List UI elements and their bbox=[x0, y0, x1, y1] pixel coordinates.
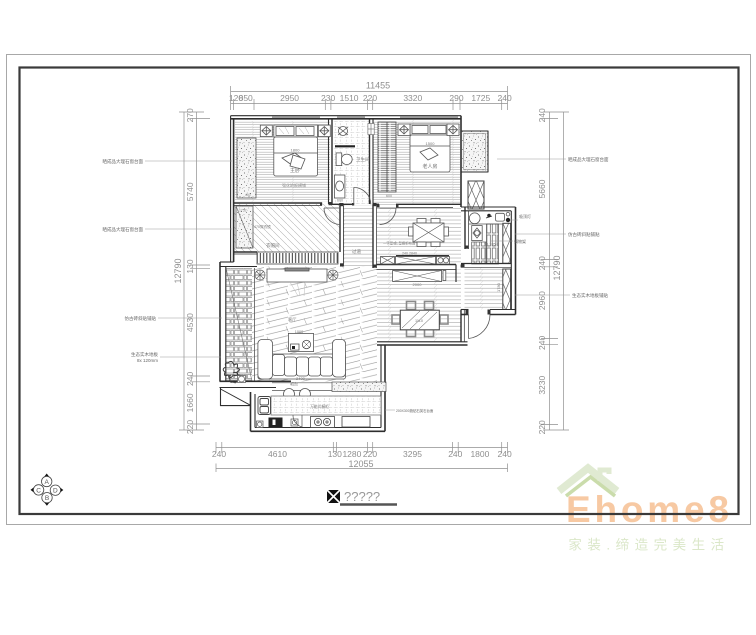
svg-text:仿古砖斜贴铺贴: 仿古砖斜贴铺贴 bbox=[125, 315, 157, 322]
svg-text:仿古砖斜贴铺贴: 仿古砖斜贴铺贴 bbox=[568, 231, 600, 238]
svg-text:2960: 2960 bbox=[537, 291, 547, 310]
svg-text:600: 600 bbox=[386, 194, 392, 198]
svg-text:1660: 1660 bbox=[185, 393, 195, 412]
svg-text:130: 130 bbox=[328, 449, 342, 459]
svg-text:生态实木地板铺贴: 生态实木地板铺贴 bbox=[572, 292, 608, 299]
svg-text:2000: 2000 bbox=[413, 282, 423, 287]
svg-text:晒成品大理石窗台面: 晒成品大理石窗台面 bbox=[568, 156, 609, 163]
svg-text:1510: 1510 bbox=[340, 93, 359, 103]
svg-text:290: 290 bbox=[449, 93, 463, 103]
svg-text:2400: 2400 bbox=[296, 376, 306, 381]
svg-text:240: 240 bbox=[537, 256, 547, 270]
svg-text:A: A bbox=[45, 479, 50, 486]
svg-text:?0.185 C: ?0.185 C bbox=[484, 243, 500, 247]
svg-text:吧台: 吧台 bbox=[290, 381, 298, 387]
svg-text:1752: 1752 bbox=[239, 209, 247, 213]
svg-text:4530: 4530 bbox=[185, 313, 195, 332]
svg-text:240: 240 bbox=[212, 449, 226, 459]
svg-text:1000: 1000 bbox=[295, 330, 303, 334]
svg-text:C: C bbox=[36, 487, 41, 494]
svg-text:3230: 3230 bbox=[537, 375, 547, 394]
svg-text:2950: 2950 bbox=[280, 93, 299, 103]
svg-text:230: 230 bbox=[321, 93, 335, 103]
svg-text:850: 850 bbox=[239, 93, 253, 103]
svg-text:3295: 3295 bbox=[403, 449, 422, 459]
svg-text:240: 240 bbox=[448, 449, 462, 459]
svg-text:生态实木地板: 生态实木地板 bbox=[131, 351, 158, 358]
svg-text:220: 220 bbox=[537, 420, 547, 434]
svg-text:450: 450 bbox=[245, 193, 251, 197]
svg-text:200X300施贴石英石台面: 200X300施贴石英石台面 bbox=[396, 408, 434, 413]
svg-text:240 2840: 240 2840 bbox=[402, 252, 417, 256]
svg-text:5660: 5660 bbox=[537, 179, 547, 198]
svg-text:1800: 1800 bbox=[291, 148, 301, 153]
svg-text:家装.缔造完美生活: 家装.缔造完美生活 bbox=[568, 537, 729, 553]
svg-text:1725: 1725 bbox=[471, 93, 490, 103]
svg-text:4610: 4610 bbox=[268, 449, 287, 459]
svg-text:衣帽间: 衣帽间 bbox=[266, 242, 280, 249]
svg-text:过道: 过道 bbox=[352, 248, 361, 255]
svg-text:?????: ????? bbox=[344, 489, 380, 504]
svg-text:130: 130 bbox=[185, 259, 195, 273]
svg-text:12055: 12055 bbox=[348, 459, 373, 469]
svg-text:晒成品大理石窗台面: 晒成品大理石窗台面 bbox=[103, 158, 144, 165]
svg-text:万能式橱柜: 万能式橱柜 bbox=[310, 404, 329, 409]
svg-text:B: B bbox=[45, 495, 49, 502]
svg-text:240: 240 bbox=[537, 336, 547, 350]
svg-text:5740: 5740 bbox=[185, 182, 195, 201]
svg-text:600: 600 bbox=[337, 199, 343, 203]
svg-text:Ehome8: Ehome8 bbox=[566, 489, 733, 530]
svg-text:老人房: 老人房 bbox=[422, 163, 437, 170]
svg-text:1780: 1780 bbox=[496, 282, 501, 292]
svg-text:一字型或L型橱柜布置: 一字型或L型橱柜布置 bbox=[383, 241, 416, 246]
svg-text:主卧: 主卧 bbox=[290, 167, 300, 174]
svg-text:晒成品大理石窗台面: 晒成品大理石窗台面 bbox=[103, 226, 144, 233]
svg-text:220: 220 bbox=[363, 449, 377, 459]
svg-text:240: 240 bbox=[185, 372, 195, 386]
svg-text:1500: 1500 bbox=[426, 141, 436, 146]
svg-text:3320: 3320 bbox=[403, 93, 422, 103]
svg-text:1110: 1110 bbox=[415, 319, 423, 323]
svg-text:客厅: 客厅 bbox=[288, 316, 296, 323]
svg-text:1800: 1800 bbox=[470, 449, 489, 459]
svg-text:11455: 11455 bbox=[366, 81, 390, 91]
svg-text:270: 270 bbox=[185, 108, 195, 122]
svg-text:240: 240 bbox=[498, 93, 512, 103]
svg-text:12790: 12790 bbox=[173, 258, 183, 283]
svg-text:240: 240 bbox=[498, 449, 512, 459]
svg-text:强化地板横铺: 强化地板横铺 bbox=[282, 182, 306, 188]
svg-text:D: D bbox=[53, 488, 58, 495]
svg-text:搁物架: 搁物架 bbox=[514, 238, 526, 244]
svg-text:8x 120mm: 8x 120mm bbox=[137, 358, 158, 363]
svg-text:1280: 1280 bbox=[342, 449, 361, 459]
svg-text:吸顶灯: 吸顶灯 bbox=[519, 213, 531, 219]
svg-text:220: 220 bbox=[185, 420, 195, 434]
svg-text:卫生间: 卫生间 bbox=[356, 156, 370, 163]
svg-text:470穿衣镜: 470穿衣镜 bbox=[254, 224, 271, 229]
svg-text:240: 240 bbox=[537, 108, 547, 122]
svg-text:220: 220 bbox=[363, 93, 377, 103]
